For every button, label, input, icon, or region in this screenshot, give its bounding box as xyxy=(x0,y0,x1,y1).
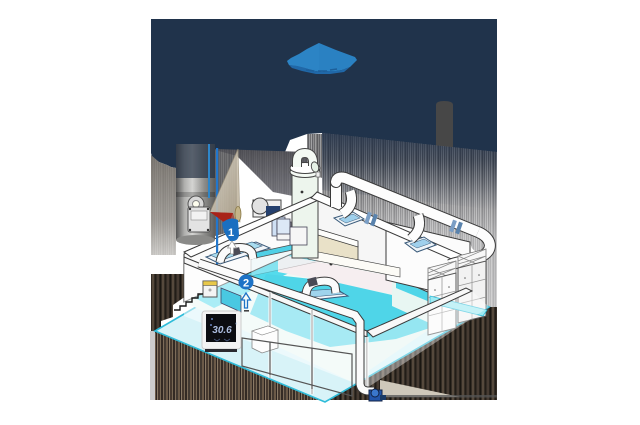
svg-text:2: 2 xyxy=(243,278,249,290)
svg-text:30.6: 30.6 xyxy=(212,325,232,336)
svg-text:1: 1 xyxy=(228,227,234,239)
